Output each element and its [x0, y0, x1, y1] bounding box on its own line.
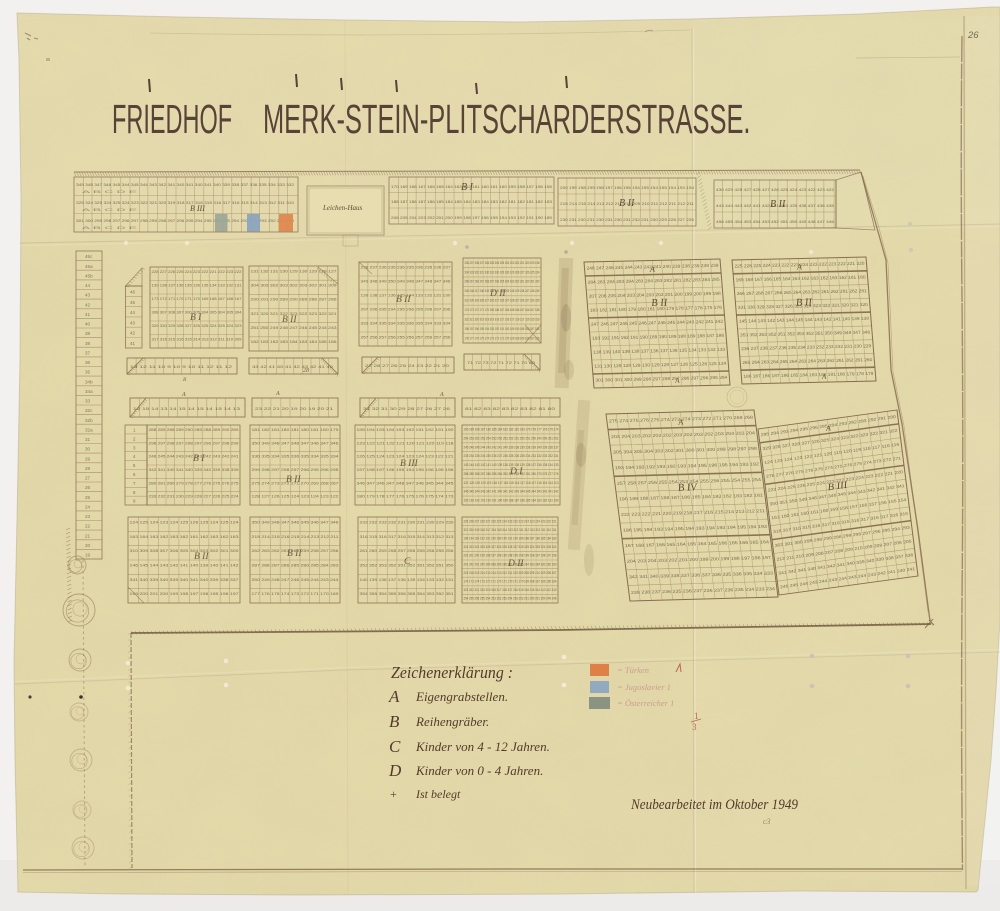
svg-text:146 145 144 143 142 141 140 13: 146 145 144 143 142 141 140 139 140 141 …	[130, 564, 239, 568]
svg-text:174 173 172 171 170 169 168 16: 174 173 172 171 170 169 168 167 166 165 …	[465, 308, 540, 312]
svg-text:173 172 171 170 171 170 169 16: 173 172 171 170 171 170 169 168 167 168 …	[152, 297, 242, 301]
svg-text:B I: B I	[461, 182, 474, 193]
svg-text:Kinder von 0 - 4 Jahren.: Kinder von 0 - 4 Jahren.	[415, 763, 543, 778]
svg-text:290 291 290 289 290 289 288 28: 290 291 290 289 290 289 288 287 286	[251, 298, 337, 302]
svg-text:254 255 256 255 254 253 252 25: 254 255 256 255 254 253 252 253 254 253 …	[464, 597, 557, 601]
svg-text:44: 44	[85, 283, 91, 288]
svg-text:B II: B II	[287, 549, 302, 559]
svg-text:Zeichenerklärung :: Zeichenerklärung :	[391, 663, 513, 682]
svg-text:19: 19	[85, 553, 91, 558]
svg-text:44: 44	[130, 310, 135, 315]
svg-text:A: A	[677, 417, 684, 426]
svg-text:233 232 233 232 231 230 231 23: 233 232 233 232 231 230 231 230 229 230	[360, 521, 454, 525]
svg-text:29: 29	[85, 456, 91, 461]
svg-text:A B C D E: A B C D E	[82, 208, 137, 212]
svg-text:287 288 287 286 285 286 285 28: 287 288 287 286 285 286 285 284 283	[252, 564, 339, 568]
svg-text:B I: B I	[193, 454, 205, 464]
svg-text:26: 26	[85, 485, 91, 490]
svg-text:195 194 193 192 191 190 189 19: 195 194 193 192 191 190 189 190 191 190 …	[464, 537, 557, 541]
svg-text:316 315 316 317 316 315 314 31: 316 315 316 317 316 315 314 313 312 313	[360, 535, 454, 539]
svg-text:288 289 288 289 290 289 288 28: 288 289 288 289 290 289 288 289 290 289	[149, 428, 239, 432]
svg-text:45: 45	[130, 300, 135, 305]
svg-text:25: 25	[85, 495, 91, 500]
svg-text:27: 27	[85, 476, 91, 481]
svg-text:350 349 348 347 346 345 346 34: 350 349 348 347 346 345 346 347 346	[252, 521, 339, 525]
svg-text:35: 35	[85, 370, 91, 375]
svg-text:180 179 178 177 176 175 176 17: 180 179 178 177 176 175 176 175 174 173	[357, 495, 454, 499]
svg-text:346 347 346 347 348 347 346 34: 346 347 346 347 348 347 346 345 344 345	[357, 481, 454, 485]
svg-text:c3: c3	[763, 817, 771, 826]
svg-text:317 316 315 316 315 314 313 31: 317 316 315 316 315 314 313 312 311 310 …	[152, 338, 242, 342]
svg-text:310 309 308 307 306 305 304 30: 310 309 308 307 306 305 304 303 302 301 …	[130, 549, 239, 553]
svg-text:37: 37	[85, 351, 91, 356]
svg-text:B II: B II	[795, 297, 812, 308]
svg-text:233 232 231 230 229 228 227 22: 233 232 231 230 229 228 227 226 225 224	[149, 495, 239, 499]
svg-text:123 122 121 122 121 120 121 12: 123 122 121 122 121 120 121 120 119 118	[357, 441, 454, 445]
svg-text:1: 1	[694, 711, 699, 721]
svg-text:238 237 236 235 236 235 236 23: 238 237 236 235 236 235 236 235 236 237	[361, 265, 451, 269]
svg-text:FRIEDHOF: FRIEDHOF	[112, 96, 232, 142]
svg-text:128 127 126 125 124 123 124 12: 128 127 126 125 124 123 124 123 122	[252, 495, 339, 499]
svg-text:188 187 186 187 186 185 184 18: 188 187 186 187 186 185 184 185 184 183 …	[391, 200, 552, 204]
svg-text:46: 46	[130, 290, 135, 295]
svg-text:33: 33	[85, 399, 91, 404]
svg-text:71 72 73 72 71 72 71 70 69: 71 72 73 72 71 72 71 70 69	[467, 361, 535, 365]
svg-text:299 298 297 298 297 296 295 29: 299 298 297 298 297 296 295 296 295	[252, 468, 339, 472]
svg-text:215 214 215 216 215 214 213 21: 215 214 215 216 215 214 213 212 211	[252, 535, 339, 539]
svg-text:195 194 193 194 193 192 191 19: 195 194 193 194 193 192 191 192 191 190	[357, 428, 454, 432]
svg-text:28: 28	[303, 368, 309, 374]
svg-text:354 355 354 355 356 355 354 35: 354 355 354 355 356 355 354 353 352 351	[360, 592, 454, 596]
svg-text:334 333 332 331 330 331 330 32: 334 333 332 331 330 331 330 329 330 329 …	[465, 270, 540, 274]
svg-text:329 330 329 328 327 326 325 32: 329 330 329 328 327 326 325 324 325 324 …	[152, 324, 242, 328]
svg-text:= Österreicher 1: = Österreicher 1	[617, 698, 674, 708]
svg-text:32a: 32a	[85, 428, 93, 433]
svg-text:34b: 34b	[85, 379, 93, 384]
svg-text:42: 42	[130, 331, 135, 336]
svg-text:235 234 235 234 235 236 237 23: 235 234 235 234 235 236 237 236 235 236 …	[464, 454, 559, 458]
svg-text:D II: D II	[507, 559, 524, 569]
svg-text:41: 41	[130, 341, 135, 346]
svg-text:C: C	[389, 737, 401, 756]
svg-text:297 296 295 294 295 296 295 29: 297 296 295 294 295 296 295 296 297 296	[361, 307, 451, 311]
svg-text:21: 21	[85, 533, 91, 538]
svg-text:40: 40	[85, 322, 91, 327]
svg-text:81 82 83 82 83 82 83 82 81 80: 81 82 83 82 83 82 83 82 81 80	[465, 407, 555, 411]
svg-text:B II: B II	[651, 298, 668, 309]
svg-text:B II: B II	[396, 295, 411, 305]
svg-text:23 22 21 20 19 20 19 20 21: 23 22 21 20 19 20 19 20 21	[255, 407, 333, 411]
svg-text:342 341 340 341 340 339 340 33: 342 341 340 341 340 339 340 339 338 339	[149, 468, 239, 472]
svg-text:31: 31	[85, 437, 91, 442]
svg-text:45b: 45b	[85, 274, 93, 279]
svg-text:B II: B II	[194, 552, 209, 562]
svg-text:229 228 227 226 227 226 225 22: 229 228 227 226 227 226 225 224 223 222 …	[464, 519, 557, 523]
svg-text:D II: D II	[489, 289, 506, 299]
svg-text:349 348 349 350 349 348 347 34: 349 348 349 350 349 348 347 348 347 346	[361, 279, 451, 283]
svg-text:27 28 27 26 25 24 23 22 21 20: 27 28 27 26 25 24 23 22 21 20	[365, 364, 449, 368]
svg-text:174 173 174 173 172 171 170 17: 174 173 174 173 172 171 170 171 170 171 …	[464, 580, 557, 584]
svg-text:43: 43	[85, 293, 91, 298]
svg-text:192 193 192 191 190 191 190 18: 192 193 192 191 190 191 190 189 188 187 …	[464, 499, 559, 503]
svg-text:31 32 31 30 29 28 27 26 27 26: 31 32 31 30 29 28 27 26 27 26	[363, 407, 450, 411]
svg-text:261 260 259 258 257 256 255 25: 261 260 259 258 257 256 255 256 255 256	[360, 549, 454, 553]
svg-text:140 139 138 137 136 135 134 13: 140 139 138 137 136 135 134 133 132 131	[360, 578, 454, 582]
svg-text:A: A	[649, 265, 656, 274]
svg-text:430 429 428 427 428 427 426 42: 430 429 428 427 428 427 426 425 424 423 …	[716, 188, 834, 192]
svg-text:= Jugoslavier 1: = Jugoslavier 1	[617, 682, 671, 692]
svg-text:43 42 41 40 41 42 43 42 41 40: 43 42 41 40 41 42 43 42 41 40	[252, 365, 333, 369]
svg-text:202 201 200 199 198 197 198 19: 202 201 200 199 198 197 198 199 198 199 …	[464, 554, 557, 558]
svg-text:38: 38	[85, 341, 91, 346]
svg-text:Eigengrabstellen.: Eigengrabstellen.	[415, 689, 508, 704]
svg-text:336 335 334 335 336 335 334 33: 336 335 334 335 336 335 334 335 334	[252, 455, 339, 459]
svg-text:B I: B I	[190, 313, 202, 323]
svg-text:228 227 226 225 224 223 222 22: 228 227 226 225 224 223 222 221 222 223 …	[152, 270, 242, 274]
svg-text:14 15 14 13 14 15 14 15 14 15: 14 15 14 13 14 15 14 15 14 15 14 13	[133, 407, 240, 411]
svg-text:Neubearbeitet im Oktober 194: Neubearbeitet im Oktober 1949	[630, 797, 798, 813]
svg-text:182 183 182 183 184 183 184 18: 182 183 182 183 184 183 184 185 186	[251, 340, 337, 344]
svg-text:MERK-STEIN-PLITSCHARDERSTRASSE: MERK-STEIN-PLITSCHARDERSTRASSE.	[263, 96, 751, 142]
svg-text:139 138 137 136 135 136 135 13: 139 138 137 136 135 136 135 134 133 132 …	[152, 284, 242, 288]
svg-text:190 189 188 187 186 185 184 18: 190 189 188 187 186 185 184 183 182 181 …	[464, 428, 559, 432]
svg-text:32c: 32c	[85, 408, 93, 413]
svg-text:C: C	[404, 557, 411, 567]
svg-text:= Türken: = Türken	[617, 665, 649, 675]
svg-text:350 349 348 347 348 347 346 34: 350 349 348 347 348 347 346 347 346	[252, 441, 339, 445]
svg-text:A: A	[275, 391, 280, 397]
svg-text:+: +	[390, 787, 397, 801]
svg-text:251 250 249 248 247 246 245 24: 251 250 249 248 247 246 245 244 243	[251, 326, 337, 330]
svg-text:181 182 181 180 181 180 181 18: 181 182 181 180 181 180 181 180 179	[252, 428, 339, 432]
svg-text:B: B	[389, 712, 400, 731]
svg-text:34a: 34a	[85, 389, 93, 394]
svg-text:280 281 280 279 278 277 276 27: 280 281 280 279 278 277 276 275 276 275	[149, 481, 239, 485]
svg-text:26: 26	[967, 30, 979, 41]
svg-text:323 322 321 320 319 318 317 31: 323 322 321 320 319 318 317 318 317 316 …	[464, 588, 557, 592]
svg-text:325 324 325 324 325 324 323 32: 325 324 325 324 325 324 323 322 321 320 …	[76, 201, 294, 205]
svg-text:A B C D E: A B C D E	[82, 226, 137, 230]
svg-text:39: 39	[85, 331, 91, 336]
svg-text:D: D	[388, 761, 402, 780]
svg-text:177 176 175 174 173 172 171 17: 177 176 175 174 173 172 171 170 169	[252, 592, 339, 596]
svg-text:245 246 245 244 243 242 241 24: 245 246 245 244 243 242 241 240 239 238 …	[464, 445, 559, 449]
svg-text:45a: 45a	[85, 264, 93, 269]
svg-text:B II: B II	[282, 315, 297, 325]
svg-text:163 164 163 162 163 162 161 16: 163 164 163 162 163 162 161 162 163 162 …	[130, 535, 239, 539]
svg-text:D I: D I	[509, 467, 523, 477]
svg-text:A: A	[181, 392, 186, 398]
svg-text:Kinder von 4 - 12 Jahren.: Kinder von 4 - 12 Jahren.	[415, 739, 550, 754]
svg-text:A: A	[388, 687, 400, 706]
svg-text:324 323 324 325 326 327 326 32: 324 323 324 325 326 327 326 325 326 327 …	[464, 545, 557, 549]
svg-text:Leichen-Haus: Leichen-Haus	[322, 204, 363, 212]
svg-text:321 320 319 318 317 316 315 31: 321 320 319 318 317 316 315 314 313 312 …	[464, 528, 557, 532]
svg-text:R: R	[182, 377, 187, 383]
svg-text:230 231 230 231 230 231 230 23: 230 231 230 231 230 231 230 231 232 231 …	[560, 218, 694, 222]
svg-text:20: 20	[85, 543, 91, 548]
svg-text:322 321 320 319 318 319 318 31: 322 321 320 319 318 319 318 317 316 317 …	[465, 318, 540, 322]
svg-text:331 330 329 328 327 326 327 32: 331 330 329 328 327 326 327 326 327 328 …	[465, 299, 540, 303]
svg-text:32b: 32b	[85, 418, 93, 423]
svg-text:45c: 45c	[85, 254, 93, 259]
svg-text:333 334 335 334 335 336 335 33: 333 334 335 334 335 336 335 334 333 334	[361, 321, 451, 325]
svg-text:349 348 347 346 345 344 345 34: 349 348 347 346 345 344 345 344 343 342 …	[76, 183, 294, 187]
svg-text:22: 22	[85, 524, 91, 529]
svg-text:A: A	[796, 262, 803, 271]
svg-text:250 249 248 247 246 245 244 24: 250 249 248 247 246 245 244 243 244	[252, 578, 339, 582]
svg-text:124 125 124 123 124 125 126 12: 124 125 124 123 124 125 126 125 124 125 …	[130, 521, 239, 525]
svg-text:304 303 302 303 302 303 302 30: 304 303 302 303 302 303 302 301 300	[251, 284, 337, 288]
svg-text:298 297 298 297 298 297 296 29: 298 297 298 297 298 297 296 297 298 299	[149, 441, 239, 445]
svg-text:42: 42	[85, 302, 91, 307]
svg-text:254 253 252 253 254 253 252 25: 254 253 252 253 254 253 252 253 252 251 …	[464, 436, 559, 440]
svg-text:456 455 454 453 454 453 452 45: 456 455 454 453 454 453 452 451 450 449 …	[716, 220, 834, 224]
svg-text:B II: B II	[286, 475, 301, 485]
svg-text:121 120 119 120 119 118 117 11: 121 120 119 120 119 118 117 116 115 116 …	[464, 481, 559, 485]
svg-text:301 300 299 298 297 296 297 29: 301 300 299 298 297 296 297 298 299 298 …	[76, 219, 294, 223]
svg-text:257 256 257 256 255 256 257 25: 257 256 257 256 255 256 257 256 257 256	[361, 335, 451, 339]
svg-text:346 345 344 343 342 341 340 34: 346 345 344 343 342 341 340 341 342 343 …	[464, 490, 559, 494]
svg-text:178 177 176 175 174 173 172 17: 178 177 176 175 174 173 172 171 170 169 …	[465, 336, 540, 340]
svg-text:3: 3	[692, 722, 697, 732]
svg-text:Reihengräber.: Reihengräber.	[415, 714, 489, 729]
svg-text:199 200 201 200 199 198 197 19: 199 200 201 200 199 198 197 196 195 196 …	[130, 592, 239, 596]
svg-text:B IV: B IV	[677, 482, 699, 494]
svg-text:41: 41	[85, 312, 91, 317]
svg-text:28: 28	[85, 466, 91, 471]
svg-text:B II: B II	[770, 199, 786, 210]
svg-text:B III: B III	[190, 204, 205, 213]
svg-text:36: 36	[85, 360, 91, 365]
svg-text:215 216 215 214 213 214 213 21: 215 216 215 214 213 214 213 212 211 210 …	[464, 571, 557, 575]
svg-text:24: 24	[85, 505, 91, 510]
svg-text:43: 43	[130, 320, 135, 325]
svg-text:30: 30	[85, 447, 91, 452]
svg-text:B III: B III	[400, 459, 419, 469]
svg-text:Ist belegt: Ist belegt	[415, 787, 461, 801]
svg-text:13 12 11 10 9 10 9 10 11 12 11: 13 12 11 10 9 10 9 10 11 12 11 12	[130, 365, 232, 369]
svg-text:A: A	[439, 392, 444, 398]
svg-text:23: 23	[85, 514, 91, 519]
svg-text:206 205 204 203 202 201 200 19: 206 205 204 203 202 201 200 199 198 197 …	[391, 216, 552, 220]
svg-text:A B C D E: A B C D E	[82, 190, 137, 194]
svg-text:B II: B II	[619, 198, 635, 209]
svg-text:341 340 339 340 339 340 341 34: 341 340 339 340 339 340 341 340 339 338 …	[130, 578, 239, 582]
svg-text:206 207 206 207 206 205 206 20: 206 207 206 207 206 205 206 205 204 203 …	[465, 261, 540, 265]
svg-text:200 199 198 199 198 197 196 19: 200 199 198 199 198 197 196 195 194 195 …	[560, 186, 694, 190]
svg-text:268 267 266 267 268 267 266 26: 268 267 266 267 268 267 266 265 264 263 …	[465, 280, 540, 284]
